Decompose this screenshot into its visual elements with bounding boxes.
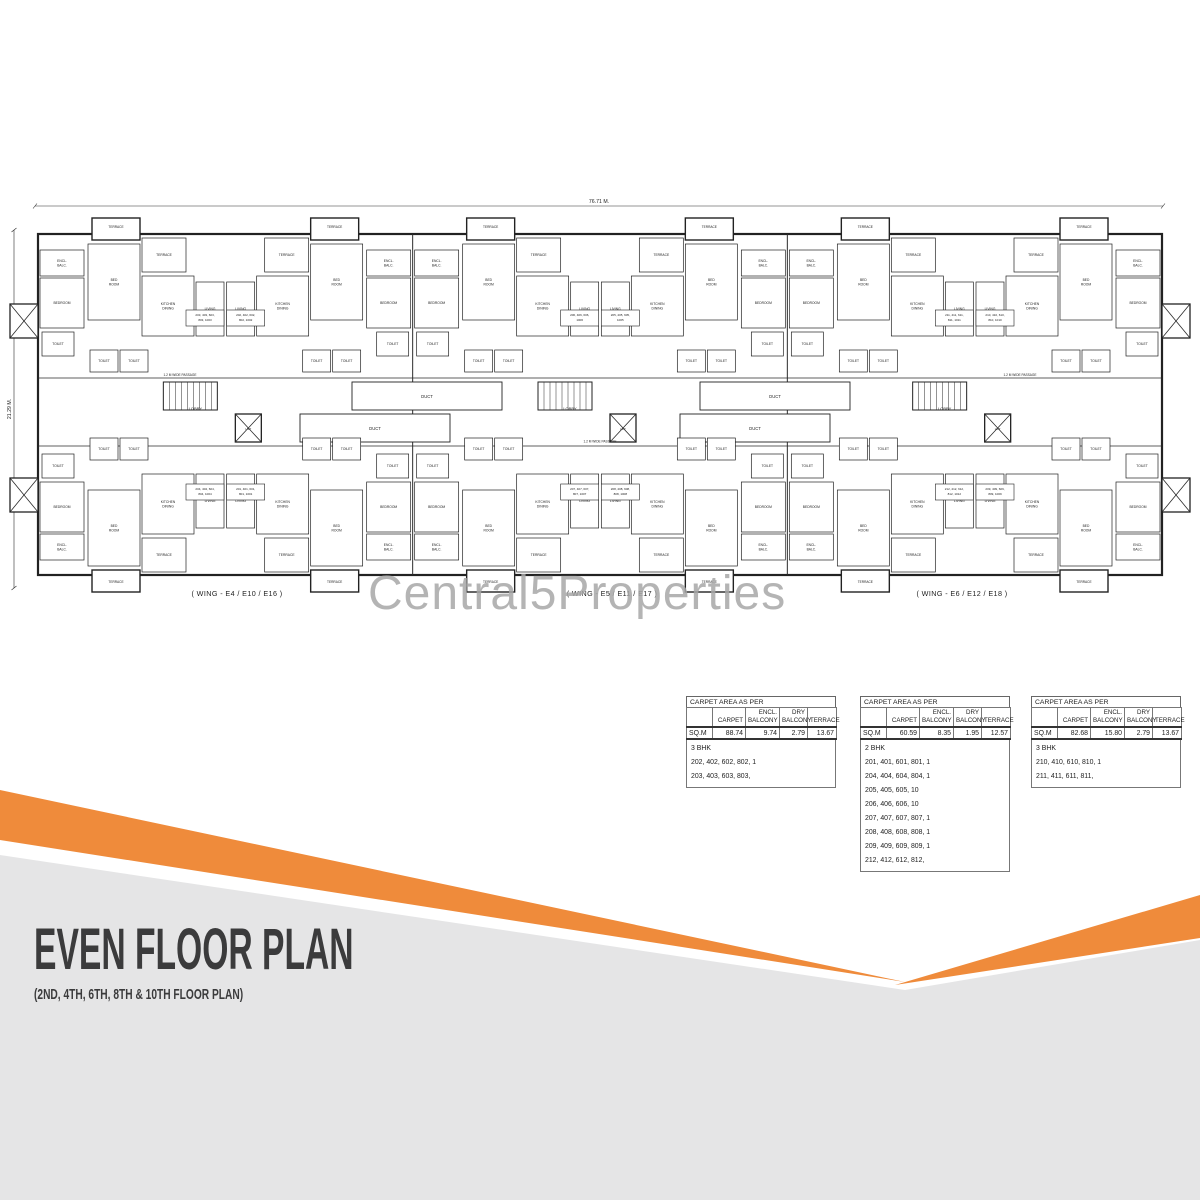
- room-label: BEDROOM: [428, 505, 445, 509]
- table-column-header: ENCL. BALCONY: [920, 708, 954, 728]
- duct-label: DUCT: [369, 426, 381, 431]
- room-label: DINING: [162, 504, 174, 508]
- title-block: EVEN FLOOR PLAN (2ND, 4TH, 6TH, 8TH & 10…: [34, 916, 585, 1003]
- carpet-area-grid: CARPETENCL. BALCONYDRY BALCONYTERRACESQ.…: [860, 707, 1011, 740]
- room-label: BALC.: [1133, 263, 1143, 267]
- unit-list-line: 209, 409, 609, 809, 1: [865, 840, 1005, 854]
- room-label: ROOM: [706, 282, 717, 286]
- room-label: TOILET: [1060, 447, 1071, 451]
- room-label: BALC.: [807, 547, 817, 551]
- unit-number-label: 1006: [576, 318, 583, 322]
- unit-number-label: 207, 407, 607,: [570, 487, 589, 491]
- room-label: TOILET: [686, 447, 697, 451]
- room-label: TOILET: [473, 447, 484, 451]
- unit-number-label: 203, 403, 603,: [195, 313, 214, 317]
- unit-number-label: 802, 1002: [239, 318, 253, 322]
- lift-label: LIFT: [995, 427, 1001, 431]
- unit-number-label: 812, 1012: [948, 492, 962, 496]
- room-label: TOILET: [762, 464, 773, 468]
- room-label: ROOM: [858, 282, 869, 286]
- room-label: BEDROOM: [1129, 505, 1146, 509]
- unit-number-label: 811, 1011: [948, 318, 961, 322]
- room-label: TOILET: [503, 359, 514, 363]
- page: 76.71 M.21.29 M.TERRACETERRACETERRACETER…: [0, 0, 1200, 1200]
- carpet-area-table-3: CARPET AREA AS PERCARPETENCL. BALCONYDRY…: [1031, 696, 1181, 788]
- room-label: TERRACE: [653, 253, 670, 257]
- room-label: ROOM: [706, 528, 717, 532]
- terrace-label: TERRACE: [702, 225, 717, 229]
- room-label: ROOM: [109, 282, 120, 286]
- room-label: BEDROOM: [53, 301, 70, 305]
- room-label: BALC.: [759, 547, 769, 551]
- left-dimension-label: 21.29 M.: [7, 399, 13, 419]
- wing-label: ( WING - E4 / E10 / E16 ): [191, 589, 282, 598]
- unit-list: 3 BHK210, 410, 610, 810, 1211, 411, 611,…: [1031, 740, 1181, 788]
- unit-number-label: 212, 412, 612,: [945, 487, 964, 491]
- room-label: DINING: [652, 504, 664, 508]
- unit-list-line: 207, 407, 607, 807, 1: [865, 812, 1005, 826]
- unit-number-label: 804, 1004: [198, 492, 212, 496]
- unit-number-label: 209, 409, 609,: [985, 487, 1004, 491]
- passage-label: 1.2 M WIDE PASSAGE: [583, 440, 616, 444]
- room-label: TOILET: [1060, 359, 1071, 363]
- room-label: ROOM: [484, 282, 495, 286]
- room-label: TOILET: [427, 464, 438, 468]
- room-label: ROOM: [109, 528, 120, 532]
- room-label: TOILET: [1090, 447, 1101, 451]
- table-column-header: DRY BALCONY: [954, 708, 982, 728]
- room-label: TERRACE: [1028, 253, 1045, 257]
- unit-list-line: 204, 404, 604, 804, 1: [865, 770, 1005, 784]
- unit-number-label: 202, 402, 602,: [236, 313, 255, 317]
- table-column-header: ENCL. BALCONY: [746, 708, 780, 728]
- room-label: TERRACE: [905, 553, 922, 557]
- table-column-header: DRY BALCONY: [1125, 708, 1153, 728]
- unit-list-line: 202, 402, 602, 802, 1: [691, 756, 831, 770]
- table-column-header: [861, 708, 887, 728]
- table-column-header: CARPET: [713, 708, 746, 728]
- room-label: ROOM: [484, 528, 495, 532]
- top-dimension-label: 76.71 M.: [589, 199, 609, 205]
- room-label: BEDROOM: [380, 505, 397, 509]
- lobby-label: LOBBY: [938, 406, 952, 411]
- unit-number-label: 809, 1009: [988, 492, 1002, 496]
- unit-number-label: 205, 405, 605,: [611, 313, 630, 317]
- room-label: BALC.: [57, 263, 67, 267]
- room-label: TOILET: [98, 447, 109, 451]
- table-column-header: [1032, 708, 1058, 728]
- room-label: TOILET: [52, 342, 63, 346]
- room-label: BEDROOM: [755, 301, 772, 305]
- room-label: TOILET: [341, 359, 352, 363]
- table-value-cell: 12.57: [982, 727, 1011, 739]
- passage-label: 1.2 M WIDE PASSAGE: [1003, 373, 1036, 377]
- room-label: TOILET: [1136, 342, 1147, 346]
- table-value-cell: 82.68: [1058, 727, 1091, 739]
- room-label: ROOM: [858, 528, 869, 532]
- room-label: ROOM: [332, 282, 343, 286]
- room-label: BALC.: [432, 263, 442, 267]
- room-label: TERRACE: [653, 553, 670, 557]
- table-column-header: ENCL. BALCONY: [1091, 708, 1125, 728]
- room-label: TERRACE: [531, 553, 548, 557]
- room-label: TERRACE: [531, 253, 548, 257]
- room-label: TOILET: [341, 447, 352, 451]
- room-label: TOILET: [802, 464, 813, 468]
- room-label: DINING: [162, 306, 174, 310]
- room-label: TERRACE: [279, 253, 296, 257]
- room-label: TOILET: [52, 464, 63, 468]
- table-value-cell: 88.74: [713, 727, 746, 739]
- table-value-cell: SQ.M: [1032, 727, 1058, 739]
- unit-list-line: 201, 401, 601, 801, 1: [865, 756, 1005, 770]
- room-label: BEDROOM: [53, 505, 70, 509]
- terrace-label: TERRACE: [327, 580, 342, 584]
- carpet-area-grid: CARPETENCL. BALCONYDRY BALCONYTERRACESQ.…: [686, 707, 837, 740]
- terrace-protrusion: [1060, 218, 1108, 240]
- terrace-protrusion: [685, 218, 733, 240]
- room-label: BALC.: [57, 547, 67, 551]
- room-label: BALC.: [432, 547, 442, 551]
- terrace-label: TERRACE: [1076, 580, 1091, 584]
- room-label: TOILET: [473, 359, 484, 363]
- lift-label: LIFT: [245, 427, 251, 431]
- table-value-cell: 2.79: [1125, 727, 1153, 739]
- lift-label: LIFT: [620, 427, 626, 431]
- room-label: ROOM: [1081, 528, 1092, 532]
- carpet-area-table-2: CARPET AREA AS PERCARPETENCL. BALCONYDRY…: [860, 696, 1010, 872]
- room-label: TOILET: [1090, 359, 1101, 363]
- unit-list-line: 212, 412, 612, 812,: [865, 854, 1005, 868]
- lobby-label: LOBBY: [189, 406, 203, 411]
- room-label: BEDROOM: [1129, 301, 1146, 305]
- table-column-header: DRY BALCONY: [780, 708, 808, 728]
- terrace-label: TERRACE: [108, 580, 123, 584]
- table-column-header: [687, 708, 713, 728]
- room-label: BALC.: [384, 547, 394, 551]
- table-title: CARPET AREA AS PER: [686, 696, 836, 707]
- duct-label: DUCT: [749, 426, 761, 431]
- room-label: DINING: [652, 306, 664, 310]
- table-value-cell: SQ.M: [861, 727, 887, 739]
- room-label: TOILET: [802, 342, 813, 346]
- room-label: TOILET: [848, 359, 859, 363]
- room-label: TERRACE: [156, 253, 173, 257]
- unit-number-label: 208, 408, 608,: [611, 487, 630, 491]
- unit-list-line: 203, 403, 603, 803,: [691, 770, 831, 784]
- terrace-protrusion: [92, 218, 140, 240]
- room-label: TOILET: [878, 447, 889, 451]
- watermark: Central5Properties: [368, 566, 786, 621]
- room-label: TOILET: [128, 447, 139, 451]
- unit-list: 3 BHK202, 402, 602, 802, 1203, 403, 603,…: [686, 740, 836, 788]
- room-label: TOILET: [1136, 464, 1147, 468]
- carpet-area-table-1: CARPET AREA AS PERCARPETENCL. BALCONYDRY…: [686, 696, 836, 788]
- unit-list-heading: 3 BHK: [1036, 742, 1176, 756]
- room-label: DINING: [1026, 504, 1038, 508]
- unit-list-line: 208, 408, 608, 808, 1: [865, 826, 1005, 840]
- table-column-header: TERRACE: [808, 708, 837, 728]
- room-label: TOILET: [311, 447, 322, 451]
- unit-number-label: 808, 1008: [614, 492, 628, 496]
- page-title: EVEN FLOOR PLAN: [34, 916, 354, 983]
- terrace-label: TERRACE: [858, 580, 873, 584]
- unit-number-label: 206, 406, 606,: [570, 313, 589, 317]
- room-label: TOILET: [848, 447, 859, 451]
- room-label: TOILET: [387, 342, 398, 346]
- unit-list-line: 210, 410, 610, 810, 1: [1036, 756, 1176, 770]
- room-label: TERRACE: [156, 553, 173, 557]
- gray-panel: [0, 855, 1200, 1200]
- room-label: BALC.: [759, 263, 769, 267]
- terrace-label: TERRACE: [858, 225, 873, 229]
- table-title: CARPET AREA AS PER: [1031, 696, 1181, 707]
- table-value-cell: 1.95: [954, 727, 982, 739]
- room-label: BEDROOM: [803, 505, 820, 509]
- room-label: DINING: [537, 504, 549, 508]
- unit-list-line: 211, 411, 611, 811,: [1036, 770, 1176, 784]
- room-label: ROOM: [1081, 282, 1092, 286]
- terrace-protrusion: [467, 218, 515, 240]
- room-label: BEDROOM: [803, 301, 820, 305]
- unit-number-label: 201, 401, 601,: [236, 487, 255, 491]
- unit-number-label: 211, 411, 611,: [945, 313, 964, 317]
- room-label: TOILET: [503, 447, 514, 451]
- table-column-header: CARPET: [887, 708, 920, 728]
- room-label: BEDROOM: [380, 301, 397, 305]
- room-label: TERRACE: [905, 253, 922, 257]
- unit-number-label: 810, 1010: [988, 318, 1002, 322]
- room-label: BEDROOM: [428, 301, 445, 305]
- room-label: BALC.: [807, 263, 817, 267]
- room-label: TOILET: [427, 342, 438, 346]
- terrace-protrusion: [311, 218, 359, 240]
- room-label: DINING: [1026, 306, 1038, 310]
- table-column-header: TERRACE: [1153, 708, 1182, 728]
- table-column-header: TERRACE: [982, 708, 1011, 728]
- room-label: TOILET: [98, 359, 109, 363]
- room-label: DINING: [537, 306, 549, 310]
- table-column-header: CARPET: [1058, 708, 1091, 728]
- table-value-cell: 13.67: [1153, 727, 1182, 739]
- lobby-label: LOBBY: [563, 406, 577, 411]
- room-label: DINING: [912, 306, 924, 310]
- terrace-label: TERRACE: [108, 225, 123, 229]
- unit-list-line: 206, 406, 606, 10: [865, 798, 1005, 812]
- unit-number-label: 204, 404, 604,: [195, 487, 214, 491]
- room-label: TOILET: [878, 359, 889, 363]
- terrace-label: TERRACE: [327, 225, 342, 229]
- terrace-protrusion: [841, 218, 889, 240]
- room-label: DINING: [912, 504, 924, 508]
- room-label: BALC.: [1133, 547, 1143, 551]
- table-value-cell: SQ.M: [687, 727, 713, 739]
- table-value-cell: 60.59: [887, 727, 920, 739]
- duct-label: DUCT: [769, 394, 781, 399]
- unit-number-label: 803, 1003: [198, 318, 212, 322]
- page-subtitle: (2ND, 4TH, 6TH, 8TH & 10TH FLOOR PLAN): [34, 986, 409, 1003]
- room-label: ROOM: [332, 528, 343, 532]
- table-value-cell: 2.79: [780, 727, 808, 739]
- table-value-cell: 8.35: [920, 727, 954, 739]
- table-value-cell: 9.74: [746, 727, 780, 739]
- room-label: BEDROOM: [755, 505, 772, 509]
- room-label: TERRACE: [1028, 553, 1045, 557]
- unit-number-label: 210, 410, 610,: [985, 313, 1004, 317]
- room-label: DINING: [277, 504, 289, 508]
- terrace-label: TERRACE: [1076, 225, 1091, 229]
- unit-list-line: 205, 405, 605, 10: [865, 784, 1005, 798]
- unit-list-heading: 3 BHK: [691, 742, 831, 756]
- room-label: TERRACE: [279, 553, 296, 557]
- room-label: TOILET: [387, 464, 398, 468]
- room-label: TOILET: [686, 359, 697, 363]
- room-label: TOILET: [128, 359, 139, 363]
- wing-label: ( WING - E6 / E12 / E18 ): [916, 589, 1007, 598]
- room-label: TOILET: [716, 359, 727, 363]
- unit-number-label: 1005: [617, 318, 624, 322]
- table-title: CARPET AREA AS PER: [860, 696, 1010, 707]
- room-label: TOILET: [762, 342, 773, 346]
- table-value-cell: 13.67: [808, 727, 837, 739]
- duct-label: DUCT: [421, 394, 433, 399]
- room-label: TOILET: [311, 359, 322, 363]
- unit-number-label: 807, 1007: [573, 492, 587, 496]
- passage-label: 1.2 M WIDE PASSAGE: [163, 373, 196, 377]
- room-label: DINING: [277, 306, 289, 310]
- room-label: BALC.: [384, 263, 394, 267]
- terrace-label: TERRACE: [483, 225, 498, 229]
- unit-list-heading: 2 BHK: [865, 742, 1005, 756]
- carpet-area-grid: CARPETENCL. BALCONYDRY BALCONYTERRACESQ.…: [1031, 707, 1182, 740]
- unit-list: 2 BHK201, 401, 601, 801, 1204, 404, 604,…: [860, 740, 1010, 872]
- table-value-cell: 15.80: [1091, 727, 1125, 739]
- unit-number-label: 801, 1001: [239, 492, 253, 496]
- room-label: TOILET: [716, 447, 727, 451]
